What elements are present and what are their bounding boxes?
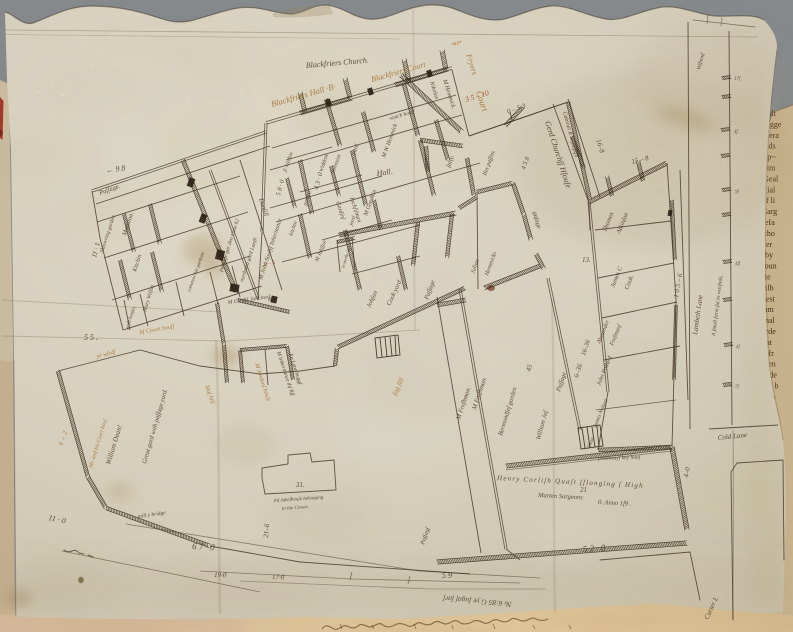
- svg-text:6: 6: [268, 297, 271, 303]
- svg-text:5 5 .: 5 5 .: [84, 333, 98, 342]
- svg-text:4ſſ: 4ſſ: [735, 262, 741, 267]
- svg-text:21: 21: [580, 486, 587, 494]
- svg-text:4ſ: 4ſ: [734, 130, 739, 135]
- svg-text:13.: 13.: [582, 256, 591, 264]
- svg-text:17·0: 17·0: [272, 573, 285, 581]
- svg-text:21–6: 21–6: [262, 523, 271, 538]
- svg-text:31.: 31.: [295, 481, 305, 489]
- svg-text:17ſ: 17ſ: [734, 77, 741, 82]
- svg-text:7ſ: 7ſ: [735, 385, 740, 390]
- svg-text:9ſ: 9ſ: [735, 190, 740, 195]
- svg-text:5 2 · 0: 5 2 · 0: [582, 542, 606, 554]
- svg-text:19·0: 19·0: [214, 571, 227, 579]
- svg-text:4ſ: 4ſ: [736, 345, 741, 350]
- svg-text:6 7 · 0: 6 7 · 0: [192, 541, 215, 552]
- svg-text:5 9: 5 9: [442, 571, 452, 580]
